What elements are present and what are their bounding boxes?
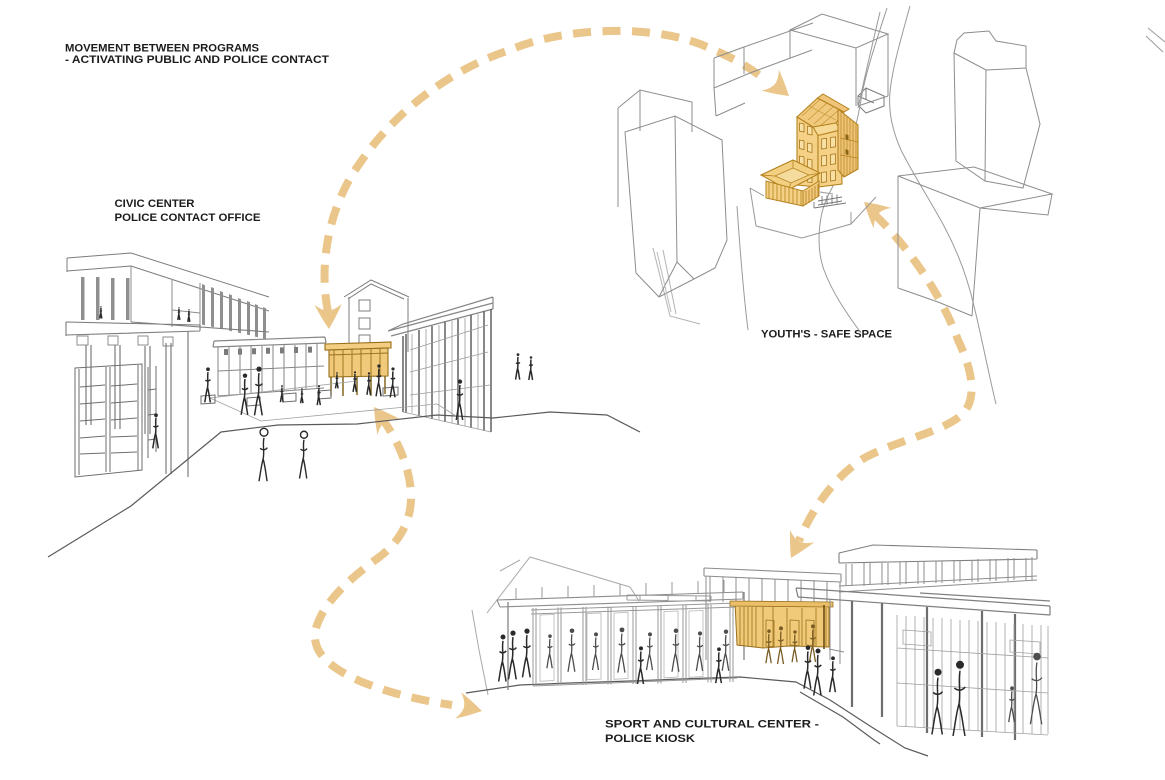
svg-text:POLICE CONTACT OFFICE: POLICE CONTACT OFFICE xyxy=(115,212,261,224)
svg-text:SPORT AND CULTURAL CENTER -: SPORT AND CULTURAL CENTER - xyxy=(605,719,819,731)
svg-text:- ACTIVATING PUBLIC AND POLICE: - ACTIVATING PUBLIC AND POLICE CONTACT xyxy=(65,54,329,66)
svg-text:MOVEMENT BETWEEN PROGRAMS: MOVEMENT BETWEEN PROGRAMS xyxy=(65,43,259,55)
svg-text:CIVIC CENTER: CIVIC CENTER xyxy=(115,198,195,210)
svg-text:YOUTH'S - SAFE SPACE: YOUTH'S - SAFE SPACE xyxy=(761,329,892,341)
svg-text:POLICE KIOSK: POLICE KIOSK xyxy=(605,733,695,745)
